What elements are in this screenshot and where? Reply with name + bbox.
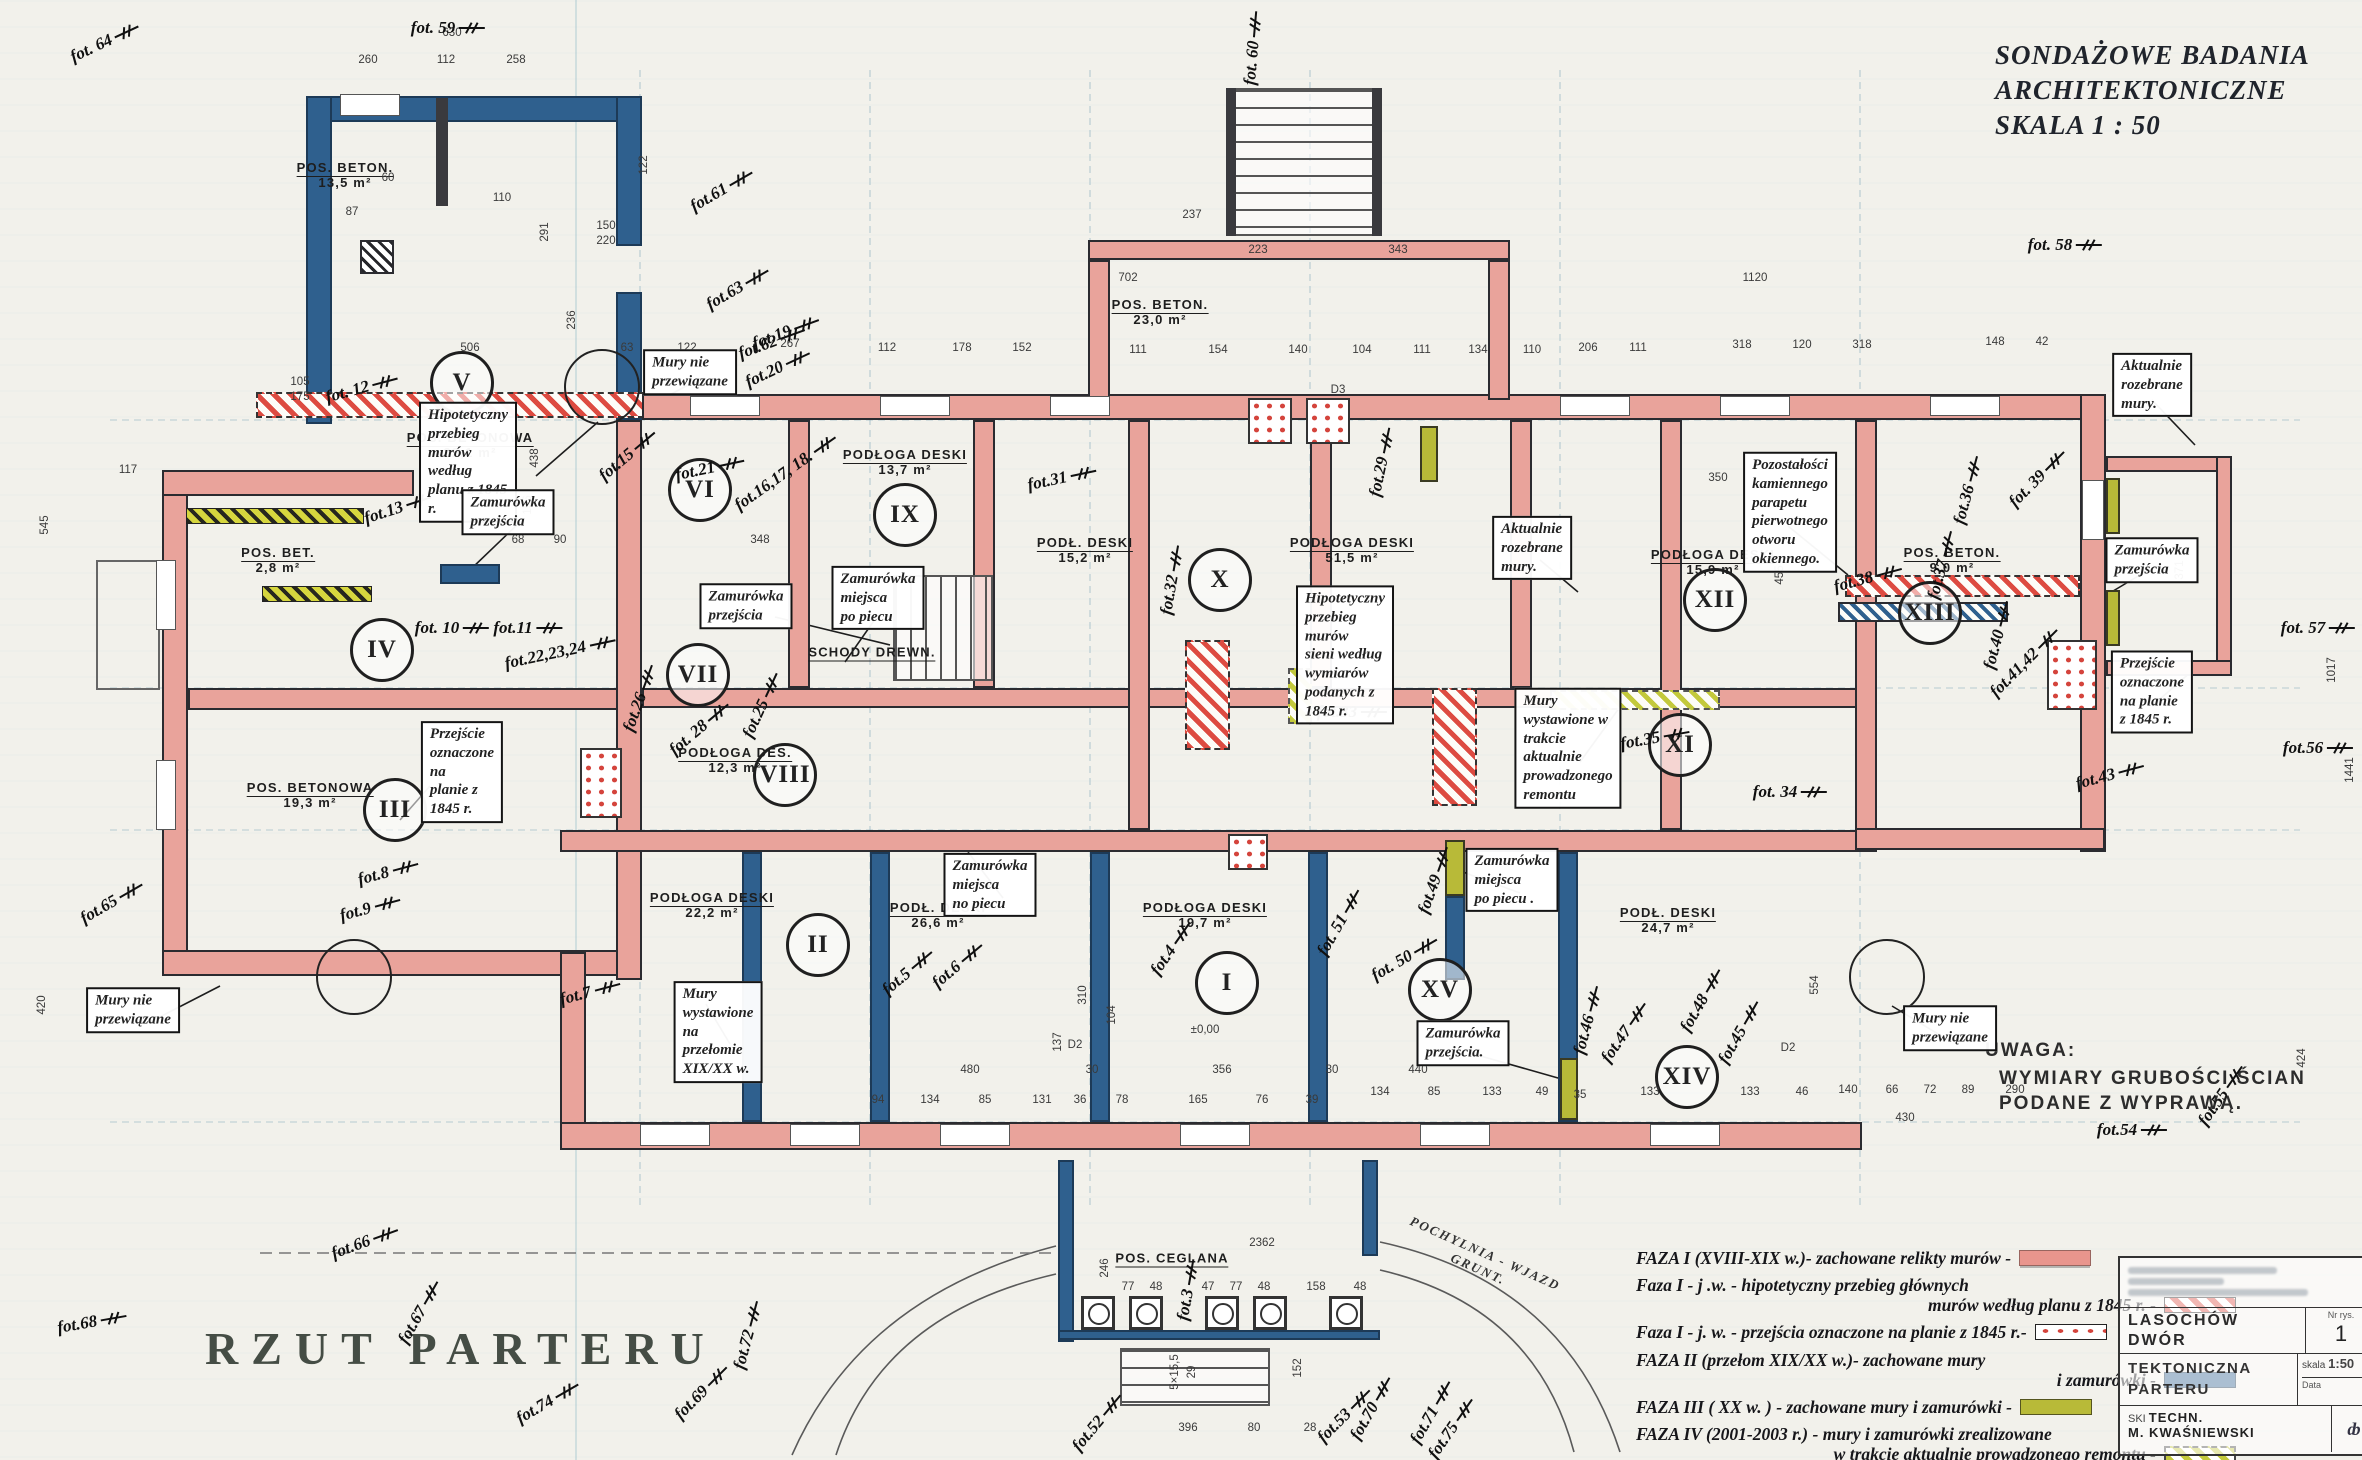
porch-column <box>1129 1296 1163 1330</box>
dimension-text: 237 <box>1182 209 1201 221</box>
title-block-object: LASOCHÓW DWÓR Nr rys. 1 <box>2120 1308 2362 1354</box>
photo-direction-icon <box>2327 747 2353 749</box>
dimension-text: 348 <box>750 534 769 546</box>
photo-marker-label: fot.56 <box>2283 738 2323 758</box>
dimension-text: 430 <box>1895 1112 1914 1124</box>
floor-label: POS. BET.2,8 m² <box>241 545 315 575</box>
photo-direction-icon <box>2226 1066 2243 1088</box>
driveway-arc <box>792 1246 1056 1455</box>
annotation-box: Zamurówka przejścia. <box>1416 1020 1509 1066</box>
dimension-text: 480 <box>960 1064 979 1076</box>
annotation-box: Hipotetyczny przebieg murów sieni według… <box>1296 585 1394 724</box>
photo-direction-icon <box>1103 1394 1121 1415</box>
wall-segment <box>96 560 160 690</box>
floor-area: 19,7 m² <box>1143 915 1267 930</box>
room-circle-xv: XV <box>1408 958 1472 1022</box>
wall-segment <box>2106 478 2120 534</box>
dimension-text: 420 <box>36 995 48 1014</box>
dimension-text: 85 <box>1428 1086 1441 1098</box>
dimension-text: 30 <box>1326 1064 1339 1076</box>
window-opening <box>1560 396 1630 416</box>
floor-label: PODŁ. DESKI24,7 m² <box>1620 905 1716 935</box>
window-opening <box>940 1124 1010 1146</box>
photo-direction-icon <box>459 27 485 29</box>
dimension-text: 30 <box>1086 1064 1099 1076</box>
photo-direction-icon <box>2329 627 2355 629</box>
dimension-text: 120 <box>1792 339 1811 351</box>
drawing-number-cell: Nr rys. 1 <box>2305 1308 2362 1353</box>
dimension-text: 48 <box>1258 1281 1271 1293</box>
dimension-text: 220 <box>596 235 615 247</box>
dimension-text: 206 <box>1578 342 1597 354</box>
photo-direction-icon <box>1744 1001 1759 1025</box>
dimension-text: 5×15,5 <box>1169 1354 1181 1390</box>
drawing-number-value: 1 <box>2306 1321 2362 1347</box>
wall-segment <box>1228 834 1268 870</box>
porch-column <box>1205 1296 1239 1330</box>
wall-segment <box>580 748 622 818</box>
dimension-text: 89 <box>1962 1084 1975 1096</box>
dimension-text: 131 <box>1032 1094 1051 1106</box>
room-circle-i: I <box>1195 951 1259 1015</box>
techn-name: M. KWAŚNIEWSKI <box>2128 1425 2323 1440</box>
dimension-text: 133 <box>1640 1086 1659 1098</box>
dimension-text: 110 <box>493 192 511 204</box>
room-circle-ix: IX <box>873 483 937 547</box>
dimension-text: 148 <box>1985 336 2004 348</box>
window-opening <box>1420 1124 1490 1146</box>
photo-direction-icon <box>537 627 563 629</box>
photo-marker-label: fot.11 <box>493 618 532 638</box>
photo-direction-icon <box>642 665 653 690</box>
title-block-stamp <box>2120 1258 2362 1308</box>
photo-direction-icon <box>1383 427 1390 453</box>
signature-scribble: ȸ <box>2331 1406 2362 1452</box>
wall-segment <box>306 96 332 424</box>
dimension-text: 104 <box>1352 344 1371 356</box>
wall-segment <box>186 508 364 524</box>
dimension-text: 94 <box>872 1094 885 1106</box>
wall-segment <box>162 470 414 496</box>
scale-label: skala <box>2302 1360 2325 1371</box>
dimension-text: 134 <box>920 1094 939 1106</box>
wall-segment <box>360 240 394 274</box>
window-opening <box>2082 480 2104 540</box>
dimension-text: 78 <box>1116 1094 1129 1106</box>
wall-segment <box>2216 456 2232 676</box>
dimension-text: 343 <box>1388 244 1407 256</box>
window-opening <box>156 760 176 830</box>
dimension-text: 424 <box>2296 1048 2308 1067</box>
dimension-text: 36 <box>1074 1094 1087 1106</box>
photo-direction-icon <box>2141 1129 2167 1131</box>
photo-direction-icon <box>729 172 753 187</box>
photo-direction-icon <box>2076 244 2102 246</box>
dimension-text: 318 <box>1852 339 1871 351</box>
annotation-box: Zamurówka miejsca po piecu . <box>1465 848 1558 912</box>
photo-direction-icon <box>594 983 620 992</box>
wall-segment <box>2047 640 2097 710</box>
dimension-text: 545 <box>39 515 51 534</box>
wall-segment <box>262 586 372 602</box>
dimension-text: 134 <box>1370 1086 1389 1098</box>
wall-segment <box>1372 88 1382 236</box>
wall-segment <box>1488 260 1510 400</box>
wall-segment <box>1058 1330 1380 1340</box>
dimension-text: 350 <box>1708 472 1727 484</box>
photo-marker: fot. 58 <box>2028 235 2102 255</box>
window-opening <box>640 1124 710 1146</box>
annotation-box: Pozostałości kamiennego parapetu pierwot… <box>1743 452 1837 573</box>
dimension-text: 150 <box>596 220 615 232</box>
scale-value: 1:50 <box>2328 1356 2354 1371</box>
floor-material: SCHODY DREWN. <box>808 645 935 662</box>
dimension-text: 46 <box>1796 1086 1809 1098</box>
dimension-text: 48 <box>1354 1281 1367 1293</box>
driveway-arc <box>836 1274 1056 1455</box>
photo-marker: fot.56 <box>2283 738 2353 758</box>
dimension-text: 318 <box>1732 339 1751 351</box>
photo-direction-icon <box>2038 629 2058 649</box>
title-block-signature: SKI TECHN. M. KWAŚNIEWSKI ȸ <box>2120 1406 2362 1452</box>
dimension-text: 105 <box>290 376 309 388</box>
photo-direction-icon <box>374 899 400 908</box>
floor-area: 2,8 m² <box>241 560 315 575</box>
dimension-text: 35 <box>1574 1089 1587 1101</box>
photo-direction-icon <box>1877 568 1903 577</box>
floor-area: 13,7 m² <box>843 462 967 477</box>
dimension-text: 140 <box>1838 1084 1857 1096</box>
floor-area: 19,3 m² <box>247 795 374 810</box>
photo-marker-label: fot.54 <box>2097 1120 2137 1140</box>
floor-label: POS. BETON.13,5 m² <box>297 160 394 190</box>
dimension-text: 175 <box>290 391 309 403</box>
dimension-text: D2 <box>1068 1039 1083 1051</box>
annotation-box: Zamurówka miejsca po piecu <box>831 566 924 630</box>
dimension-text: 236 <box>566 310 578 329</box>
photo-direction-icon <box>1999 601 2008 627</box>
floor-label: PODŁ. DESKI15,2 m² <box>1037 535 1133 565</box>
dimension-text: 111 <box>1413 344 1430 356</box>
photo-direction-icon <box>119 884 143 899</box>
dimension-text: 140 <box>1288 344 1307 356</box>
floor-label: POS. BETONOWA19,3 m² <box>247 780 374 810</box>
date-label: Data <box>2302 1377 2362 1390</box>
dimension-text: 77 <box>1230 1281 1243 1293</box>
room-circle-xii: XII <box>1683 568 1747 632</box>
window-opening <box>156 560 176 630</box>
dimension-text: 112 <box>437 54 455 66</box>
wall-segment <box>560 830 1858 852</box>
legend-text: FAZA I (XVIII-XIX w.)- zachowane relikty… <box>1636 1248 2011 1268</box>
wall-segment <box>1088 260 1110 400</box>
wall-segment <box>1226 88 1236 236</box>
wall-segment <box>1306 398 1350 444</box>
room-circle-x: X <box>1188 548 1252 612</box>
driveway-arc <box>1380 1270 1574 1452</box>
photo-direction-icon <box>794 319 819 330</box>
dimension-text: 80 <box>1248 1422 1261 1434</box>
photo-direction-icon <box>373 1229 398 1240</box>
legend-text: w trakcie aktualnie prowadzonego remontu… <box>1834 1444 2156 1460</box>
detail-circle <box>316 939 392 1015</box>
legend-swatch-faza-3 <box>2020 1399 2092 1415</box>
dimension-text: 1120 <box>1743 272 1768 284</box>
dimension-text: 133 <box>1482 1086 1501 1098</box>
floor-label: PODŁOGA DES.12,3 m² <box>678 745 792 775</box>
window-opening <box>340 94 400 116</box>
dimension-text: 291 <box>539 222 551 241</box>
annotation-box: Przejście oznaczone na planie z 1845 r. <box>2111 651 2193 734</box>
dimension-text: 48 <box>1150 1281 1163 1293</box>
dimension-text: 440 <box>1408 1064 1427 1076</box>
photo-direction-icon <box>2045 451 2065 471</box>
annotation-box: Mury nie przewiązane <box>1903 1005 1997 1051</box>
wall-segment <box>642 394 2106 420</box>
floor-label: POS. CEGLANA <box>1115 1251 1228 1266</box>
window-opening <box>790 1124 860 1146</box>
photo-direction-icon <box>634 432 655 450</box>
annotation-box: Zamurówka przejścia <box>699 583 792 629</box>
photo-direction-icon <box>463 627 489 629</box>
dimension-text: 39 <box>1306 1094 1319 1106</box>
annotation-box: Mury wystawione w trakcie aktualnie prow… <box>1514 688 1621 809</box>
annotation-box: Mury nie przewiązane <box>86 987 180 1033</box>
floor-area: 22,2 m² <box>650 905 774 920</box>
floor-area: 23,0 m² <box>1112 312 1209 327</box>
dimension-text: 1441 <box>2344 757 2356 783</box>
dimension-text: 178 <box>952 342 971 354</box>
photo-direction-icon <box>1414 939 1438 954</box>
wall-segment <box>1185 640 1230 750</box>
photo-marker: fot. 10 <box>415 618 489 638</box>
dimension-text: 47 <box>1202 1281 1215 1293</box>
photo-direction-icon <box>1253 11 1257 37</box>
dimension-text: 554 <box>1809 975 1821 994</box>
wall-segment <box>1432 688 1477 806</box>
photo-direction-icon <box>373 377 399 386</box>
dimension-text: 2362 <box>1249 1237 1275 1249</box>
techn-label: TECHN. <box>2149 1410 2203 1425</box>
dimension-text: 87 <box>346 206 359 218</box>
dimension-text: 310 <box>1077 985 1089 1004</box>
photo-marker-label: fot. 10 <box>415 618 459 638</box>
wall-segment <box>1090 852 1110 1122</box>
floor-label: PODŁOGA DESKI51,5 m² <box>1290 535 1414 565</box>
title-block: LASOCHÓW DWÓR Nr rys. 1 TEKTONICZNA PART… <box>2118 1256 2362 1456</box>
wall-segment <box>1128 420 1150 830</box>
photo-direction-icon <box>911 951 932 969</box>
dimension-text: 158 <box>1306 1281 1325 1293</box>
title-block-subject: TEKTONICZNA PARTERU skala 1:50 Data <box>2120 1354 2362 1406</box>
window-opening <box>1930 396 2000 416</box>
dimension-text: 42 <box>2036 336 2049 348</box>
dimension-text: 396 <box>1178 1422 1197 1434</box>
annotation-box: Mury nie przewiązane <box>643 349 737 395</box>
floor-area: 24,7 m² <box>1620 920 1716 935</box>
photo-direction-icon <box>392 863 418 872</box>
wall-segment <box>2106 590 2120 646</box>
wall-segment <box>440 564 500 584</box>
photo-marker: fot. 59 <box>411 18 485 38</box>
legend-text: FAZA III ( XX w. ) - zachowane mury i za… <box>1636 1397 2012 1417</box>
photo-marker-label: fot. 57 <box>2281 618 2325 638</box>
legend-swatch-faza-1-przejscia <box>2035 1324 2107 1340</box>
legend-text: Faza I - j .w. - hipotetyczny przebieg g… <box>1636 1275 1969 1295</box>
stamp-blur-line <box>2128 1278 2224 1285</box>
room-circle-ii: II <box>786 913 850 977</box>
dimension-text: 104 <box>1106 1005 1118 1024</box>
dimension-text: ±0,00 <box>1191 1024 1220 1036</box>
photo-direction-icon <box>1436 1381 1451 1405</box>
photo-direction-icon <box>1437 847 1448 872</box>
dimension-text: 152 <box>1012 342 1031 354</box>
dimension-text: 165 <box>1188 1094 1207 1106</box>
window-opening <box>1180 1124 1250 1146</box>
dimension-text: 72 <box>1924 1084 1937 1096</box>
porch-column <box>1253 1296 1287 1330</box>
dimension-text: 152 <box>1292 1358 1304 1377</box>
dimension-text: 76 <box>1256 1094 1269 1106</box>
dimension-text: D3 <box>1331 384 1346 396</box>
wall-segment <box>436 98 448 206</box>
annotation-box: Przejście oznaczone na planie z 1845 r. <box>421 721 503 823</box>
photo-marker-label: fot. 60 <box>1240 40 1264 86</box>
dimension-text: 506 <box>460 342 479 354</box>
dimension-text: 223 <box>1248 244 1267 256</box>
photo-direction-icon <box>1173 545 1179 571</box>
dimension-text: 111 <box>1629 342 1646 354</box>
dimension-text: 117 <box>119 464 137 476</box>
legend-text: FAZA IV (2001-2003 r.) - mury i zamurówk… <box>1636 1424 2052 1444</box>
object-line1: LASOCHÓW <box>2128 1311 2297 1331</box>
wall-segment <box>1058 1160 1074 1342</box>
photo-direction-icon <box>1345 889 1360 913</box>
dimension-text: 137 <box>1052 1032 1064 1051</box>
dimension-text: 260 <box>358 54 377 66</box>
wall-segment <box>1362 1160 1378 1256</box>
scale-cell: skala 1:50 Data <box>2297 1354 2362 1405</box>
floor-material: POS. CEGLANA <box>1115 1251 1228 1268</box>
subject-name: TEKTONICZNA PARTERU <box>2120 1354 2297 1405</box>
photo-direction-icon <box>1376 1377 1391 1401</box>
object-name: LASOCHÓW DWÓR <box>2120 1308 2305 1353</box>
dimension-text: 702 <box>1118 272 1137 284</box>
photo-direction-icon <box>719 460 745 467</box>
floor-label: POS. BETON.23,0 m² <box>1112 297 1209 327</box>
wall-segment <box>1420 426 1438 482</box>
wall-segment <box>1088 240 1510 260</box>
dimension-text: 77 <box>1122 1281 1135 1293</box>
photo-direction-icon <box>1456 1399 1473 1421</box>
floor-area: 51,5 m² <box>1290 550 1414 565</box>
floor-area: 15,2 m² <box>1037 550 1133 565</box>
annotation-box: Aktualnie rozebrane mury. <box>1492 516 1572 580</box>
wall-segment <box>1308 852 1328 1122</box>
dimension-text: 133 <box>1740 1086 1759 1098</box>
scanned-floor-plan: IIIIIIIVVVIVIIVIIIIXXXIXIIXIIIXIVXVPOS. … <box>0 0 2362 1460</box>
window-opening <box>880 396 950 416</box>
floor-area: 26,6 m² <box>890 915 986 930</box>
photo-direction-icon <box>589 639 615 646</box>
floor-label: PODŁOGA DESKI19,7 m² <box>1143 900 1267 930</box>
photo-direction-icon <box>101 1315 127 1321</box>
dimension-text: 438 <box>529 448 541 467</box>
photo-direction-icon <box>1188 1259 1194 1285</box>
name-fragment: SKI <box>2128 1413 2146 1425</box>
object-line2: DWÓR <box>2128 1331 2297 1351</box>
detail-circle <box>1849 939 1925 1015</box>
annotation-box: Zamurówka miejsca no piecu <box>943 853 1036 917</box>
photo-direction-icon <box>708 703 729 721</box>
floor-area: 13,5 m² <box>297 175 394 190</box>
photo-direction-icon <box>765 673 778 697</box>
floor-label: SCHODY DREWN. <box>808 645 935 660</box>
photo-direction-icon <box>1629 1003 1646 1025</box>
wall-segment <box>1248 398 1292 444</box>
dimension-text: 66 <box>1886 1084 1899 1096</box>
signature-names: SKI TECHN. M. KWAŚNIEWSKI <box>2120 1406 2331 1452</box>
photo-marker-label: fot. 34 <box>1753 782 1797 802</box>
porch-column <box>1081 1296 1115 1330</box>
wall-segment <box>1855 828 2105 850</box>
photo-marker: fot.54 <box>2097 1120 2167 1140</box>
legend-swatch-faza-1 <box>2019 1250 2091 1266</box>
dimension-text: 111 <box>1129 344 1146 356</box>
photo-direction-icon <box>1706 969 1721 993</box>
wall-segment <box>1234 88 1374 236</box>
porch-column <box>1329 1296 1363 1330</box>
dimension-text: 68 <box>512 534 525 546</box>
photo-direction-icon <box>814 436 836 453</box>
photo-direction-icon <box>1969 456 1978 482</box>
floor-label: PODŁOGA DESKI13,7 m² <box>843 447 967 477</box>
dimension-text: 154 <box>1208 344 1227 356</box>
photo-direction-icon <box>424 1281 439 1305</box>
dimension-text: 29 <box>1186 1366 1198 1379</box>
photo-marker-label: fot. 59 <box>411 18 455 38</box>
dimension-text: 290 <box>2005 1084 2024 1096</box>
photo-direction-icon <box>1801 791 1827 793</box>
subject-line1: TEKTONICZNA <box>2128 1358 2289 1379</box>
annotation-box: Mury wystawione na przełomie XIX/XX w. <box>674 981 763 1083</box>
room-circle-iv: IV <box>350 618 414 682</box>
window-opening <box>690 396 760 416</box>
photo-direction-icon <box>1071 470 1097 477</box>
photo-marker-label: fot. 58 <box>2028 235 2072 255</box>
dimension-text: 60 <box>382 172 395 184</box>
dimension-text: 1017 <box>2326 657 2338 683</box>
wall-segment <box>560 952 586 1150</box>
annotation-box: Zamurówka przejścia <box>2105 537 2198 583</box>
wall-segment <box>1855 420 1877 852</box>
photo-direction-icon <box>115 25 139 38</box>
legend-text: Faza I - j. w. - przejścia oznaczone na … <box>1636 1322 2027 1342</box>
stamp-blur-line <box>2128 1289 2308 1296</box>
dimension-text: 49 <box>1536 1086 1549 1098</box>
window-opening <box>1650 1124 1720 1146</box>
detail-circle <box>564 349 640 425</box>
photo-marker: fot.11 <box>493 618 562 638</box>
photo-direction-icon <box>961 944 982 962</box>
dimension-text: 112 <box>878 342 896 354</box>
photo-direction-icon <box>749 1301 758 1327</box>
wall-segment <box>188 688 618 710</box>
dimension-text: D2 <box>1781 1042 1796 1054</box>
photo-direction-icon <box>708 1366 728 1386</box>
annotation-box: Zamurówka przejścia <box>461 489 554 535</box>
dimension-text: 356 <box>1212 1064 1231 1076</box>
